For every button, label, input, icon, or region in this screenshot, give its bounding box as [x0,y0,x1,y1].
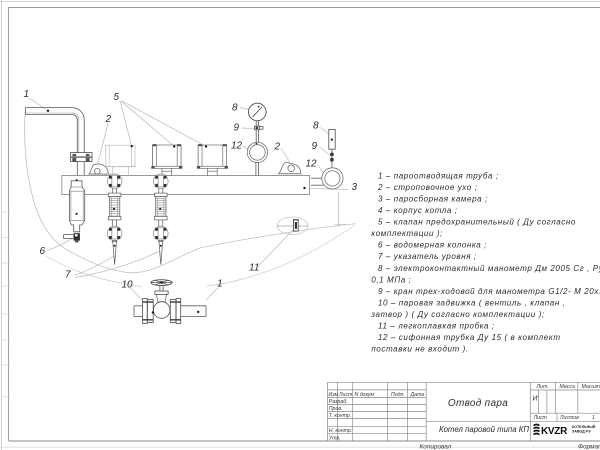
svg-text:8 – электроконтактный манометр: 8 – электроконтактный манометр Дм 2005 С… [378,264,600,273]
svg-text:10: 10 [122,279,134,290]
svg-text:11 – легкоплавкая пробка ;: 11 – легкоплавкая пробка ; [378,322,495,331]
svg-text:1: 1 [24,89,30,100]
svg-text:0,1 МПа ;: 0,1 МПа ; [371,275,411,284]
svg-text:2: 2 [105,114,112,125]
svg-text:Формат А4: Формат А4 [578,443,600,450]
svg-text:комплектации );: комплектации ); [371,229,443,238]
svg-text:9 – кран трех-ходовой для ман: 9 – кран трех-ходовой для манометра G1/2… [378,287,600,296]
svg-text:N докум: N докум [355,392,375,398]
svg-text:Масса: Масса [560,384,575,390]
svg-text:6 – водомерная колонка ;: 6 – водомерная колонка ; [378,241,487,250]
svg-text:8: 8 [232,103,238,114]
svg-text:6: 6 [40,246,46,257]
svg-text:4 – корпус котла ;: 4 – корпус котла ; [378,206,458,215]
svg-text:Котел паровой типа КП: Котел паровой типа КП [439,425,529,434]
svg-text:7: 7 [65,270,71,281]
svg-text:10 – паровая задвижка ( вент: 10 – паровая задвижка ( вентиль , клапан… [378,298,565,307]
svg-text:Копировал: Копировал [420,443,452,450]
svg-text:Т. контр.: Т. контр. [329,413,351,419]
svg-text:Пров.: Пров. [329,406,343,412]
svg-text:ЗАВОД РЭ: ЗАВОД РЭ [572,430,591,434]
svg-text:5: 5 [114,92,120,103]
svg-text:КОТЕЛЬНЫЙ: КОТЕЛЬНЫЙ [572,425,596,429]
svg-text:KVZR: KVZR [541,426,568,437]
svg-text:поставки не входит ).: поставки не входит ). [371,345,468,354]
svg-text:Отвод пара: Отвод пара [448,398,508,409]
svg-text:Лист: Лист [338,392,353,398]
svg-text:2 – строповочное ухо ;: 2 – строповочное ухо ; [377,183,478,192]
svg-text:3: 3 [352,182,358,193]
svg-text:9: 9 [312,141,318,152]
svg-text:Лист: Лист [533,415,548,421]
svg-text:Листов: Листов [559,415,579,421]
svg-text:Лит.: Лит. [536,384,549,390]
svg-text:затвор ) ( Ду согласно комплек: затвор ) ( Ду согласно комплектации ); [370,310,544,319]
svg-text:Разраб.: Разраб. [329,399,348,405]
svg-text:Утв.: Утв. [329,435,341,441]
svg-text:2: 2 [274,141,281,152]
svg-text:Н. контр.: Н. контр. [329,428,352,434]
svg-text:Подп.: Подп. [391,392,405,398]
svg-text:7 – указатель уровня ;: 7 – указатель уровня ; [378,252,477,261]
svg-text:1: 1 [592,415,595,421]
svg-text:9: 9 [234,123,240,134]
svg-text:1: 1 [217,279,223,290]
svg-text:12: 12 [231,140,243,151]
svg-text:1 – пароотводящая труба ;: 1 – пароотводящая труба ; [378,171,499,180]
svg-text:5 – клапан предохранительный: 5 – клапан предохранительный ( Ду соглас… [378,218,576,227]
svg-text:8: 8 [313,121,319,132]
svg-text:11: 11 [249,263,259,274]
svg-text:Масшт: Масшт [582,384,600,390]
svg-text:12 – сифонная трубка Ду 15 (: 12 – сифонная трубка Ду 15 ( в комплект [378,333,561,342]
svg-text:Изм: Изм [329,392,339,398]
svg-text:Дата: Дата [410,392,425,398]
svg-text:3 – паросборная камера ;: 3 – паросборная камера ; [378,194,488,203]
svg-text:12: 12 [306,159,318,170]
